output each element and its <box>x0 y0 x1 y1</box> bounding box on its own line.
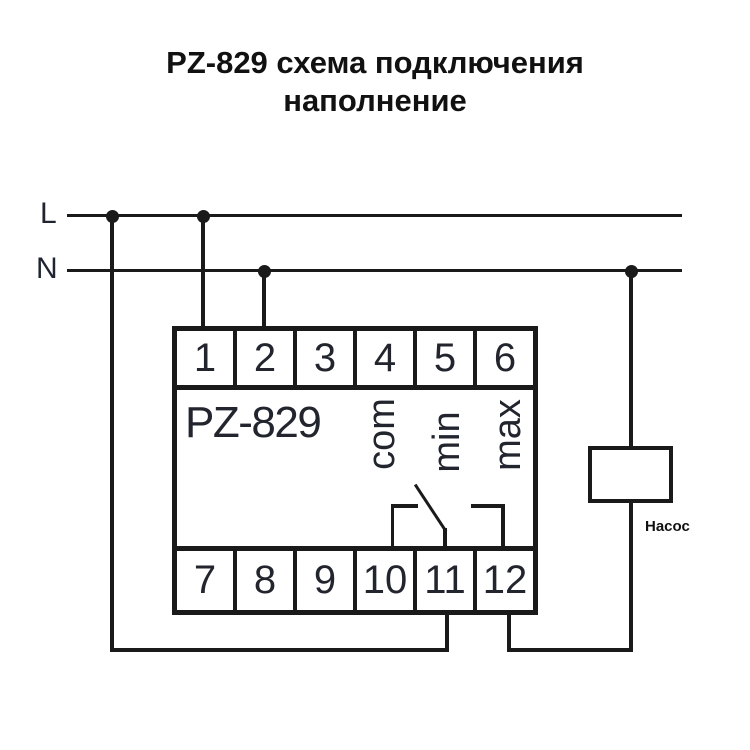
contact-label-min: min <box>428 411 466 473</box>
wire-neutral-to-pump <box>629 271 633 448</box>
relay-switch-common-vertical <box>443 528 447 551</box>
wire-pump-to-bottom <box>629 500 633 651</box>
wire-terminal-12-down <box>507 613 511 651</box>
wiring-diagram: PZ-829 схема подключения наполнение L N … <box>0 0 750 750</box>
terminal-3: 3 <box>297 331 357 385</box>
relay-switch-left-stub <box>391 504 418 508</box>
terminal-1: 1 <box>177 331 237 385</box>
terminal-2: 2 <box>237 331 297 385</box>
junction-dot-neutral-terminal2 <box>258 265 271 278</box>
terminal-4: 4 <box>357 331 417 385</box>
relay-switch-right-stub <box>471 504 505 508</box>
pump-box <box>588 446 673 503</box>
relay-model-label: PZ-829 <box>185 401 320 445</box>
wire-bottom-left-run <box>110 648 449 652</box>
terminal-6: 6 <box>477 331 533 385</box>
wire-neutral-bus <box>67 269 682 272</box>
diagram-title-line1: PZ-829 схема подключения <box>0 44 750 82</box>
terminal-12: 12 <box>477 551 533 610</box>
pump-label: Насос <box>645 518 690 535</box>
contact-label-com: com <box>363 397 401 471</box>
terminal-row-top: 1 2 3 4 5 6 <box>177 331 533 390</box>
terminal-10: 10 <box>357 551 417 610</box>
terminal-7: 7 <box>177 551 237 610</box>
relay-switch-right-vertical <box>501 504 505 551</box>
diagram-title: PZ-829 схема подключения наполнение <box>0 44 750 120</box>
terminal-8: 8 <box>237 551 297 610</box>
phase-line-label: L <box>40 199 57 229</box>
terminal-row-bottom: 7 8 9 10 11 12 <box>177 551 533 610</box>
wire-phase-to-bottom-left <box>110 216 114 651</box>
relay-switch-left-vertical <box>391 504 395 551</box>
terminal-9: 9 <box>297 551 357 610</box>
wire-phase-bus <box>67 214 682 217</box>
diagram-title-line2: наполнение <box>0 82 750 120</box>
wire-neutral-to-terminal-2 <box>262 271 266 329</box>
wire-phase-to-terminal-1 <box>201 216 205 328</box>
contact-label-max: max <box>489 398 527 472</box>
junction-dot-neutral-pump <box>625 265 638 278</box>
neutral-line-label: N <box>36 254 58 284</box>
terminal-11: 11 <box>417 551 477 610</box>
relay-device: 1 2 3 4 5 6 7 8 9 10 11 12 <box>172 326 538 615</box>
junction-dot-phase-left <box>106 210 119 223</box>
terminal-5: 5 <box>417 331 477 385</box>
wire-terminal-11-down <box>445 613 449 651</box>
wire-bottom-right-run <box>507 648 633 652</box>
junction-dot-phase-terminal1 <box>197 210 210 223</box>
